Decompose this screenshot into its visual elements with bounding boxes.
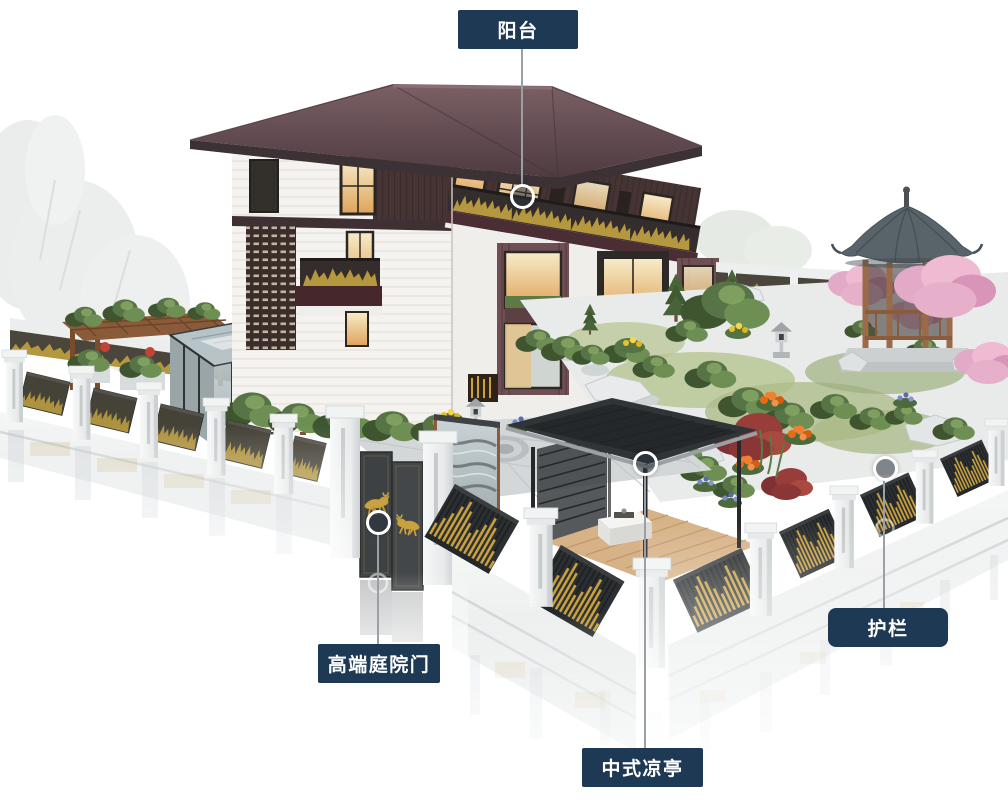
leader-line bbox=[521, 48, 523, 188]
villa-left-face bbox=[232, 142, 452, 432]
hotspot-guardrail[interactable] bbox=[873, 456, 898, 481]
label-gate: 高端庭院门 bbox=[318, 644, 440, 683]
leader-line bbox=[377, 532, 379, 644]
leader-line bbox=[883, 478, 885, 608]
label-balcony-text: 阳台 bbox=[497, 16, 538, 43]
small-balcony bbox=[296, 258, 382, 316]
annotated-villa-image: 阳台 高端庭院门 中式凉亭 护栏 bbox=[0, 0, 1008, 800]
leader-line bbox=[644, 473, 646, 748]
label-guardrail: 护栏 bbox=[828, 608, 948, 647]
scene-illustration bbox=[0, 0, 1008, 800]
hotspot-pavilion[interactable] bbox=[633, 451, 658, 476]
lattice-screen bbox=[246, 226, 296, 350]
label-pavilion-text: 中式凉亭 bbox=[601, 754, 683, 781]
hotspot-balcony[interactable] bbox=[510, 184, 535, 209]
label-guardrail-text: 护栏 bbox=[867, 614, 908, 641]
label-balcony: 阳台 bbox=[458, 10, 578, 49]
hotspot-gate[interactable] bbox=[366, 510, 391, 535]
label-pavilion: 中式凉亭 bbox=[582, 748, 703, 787]
label-gate-text: 高端庭院门 bbox=[328, 650, 431, 677]
